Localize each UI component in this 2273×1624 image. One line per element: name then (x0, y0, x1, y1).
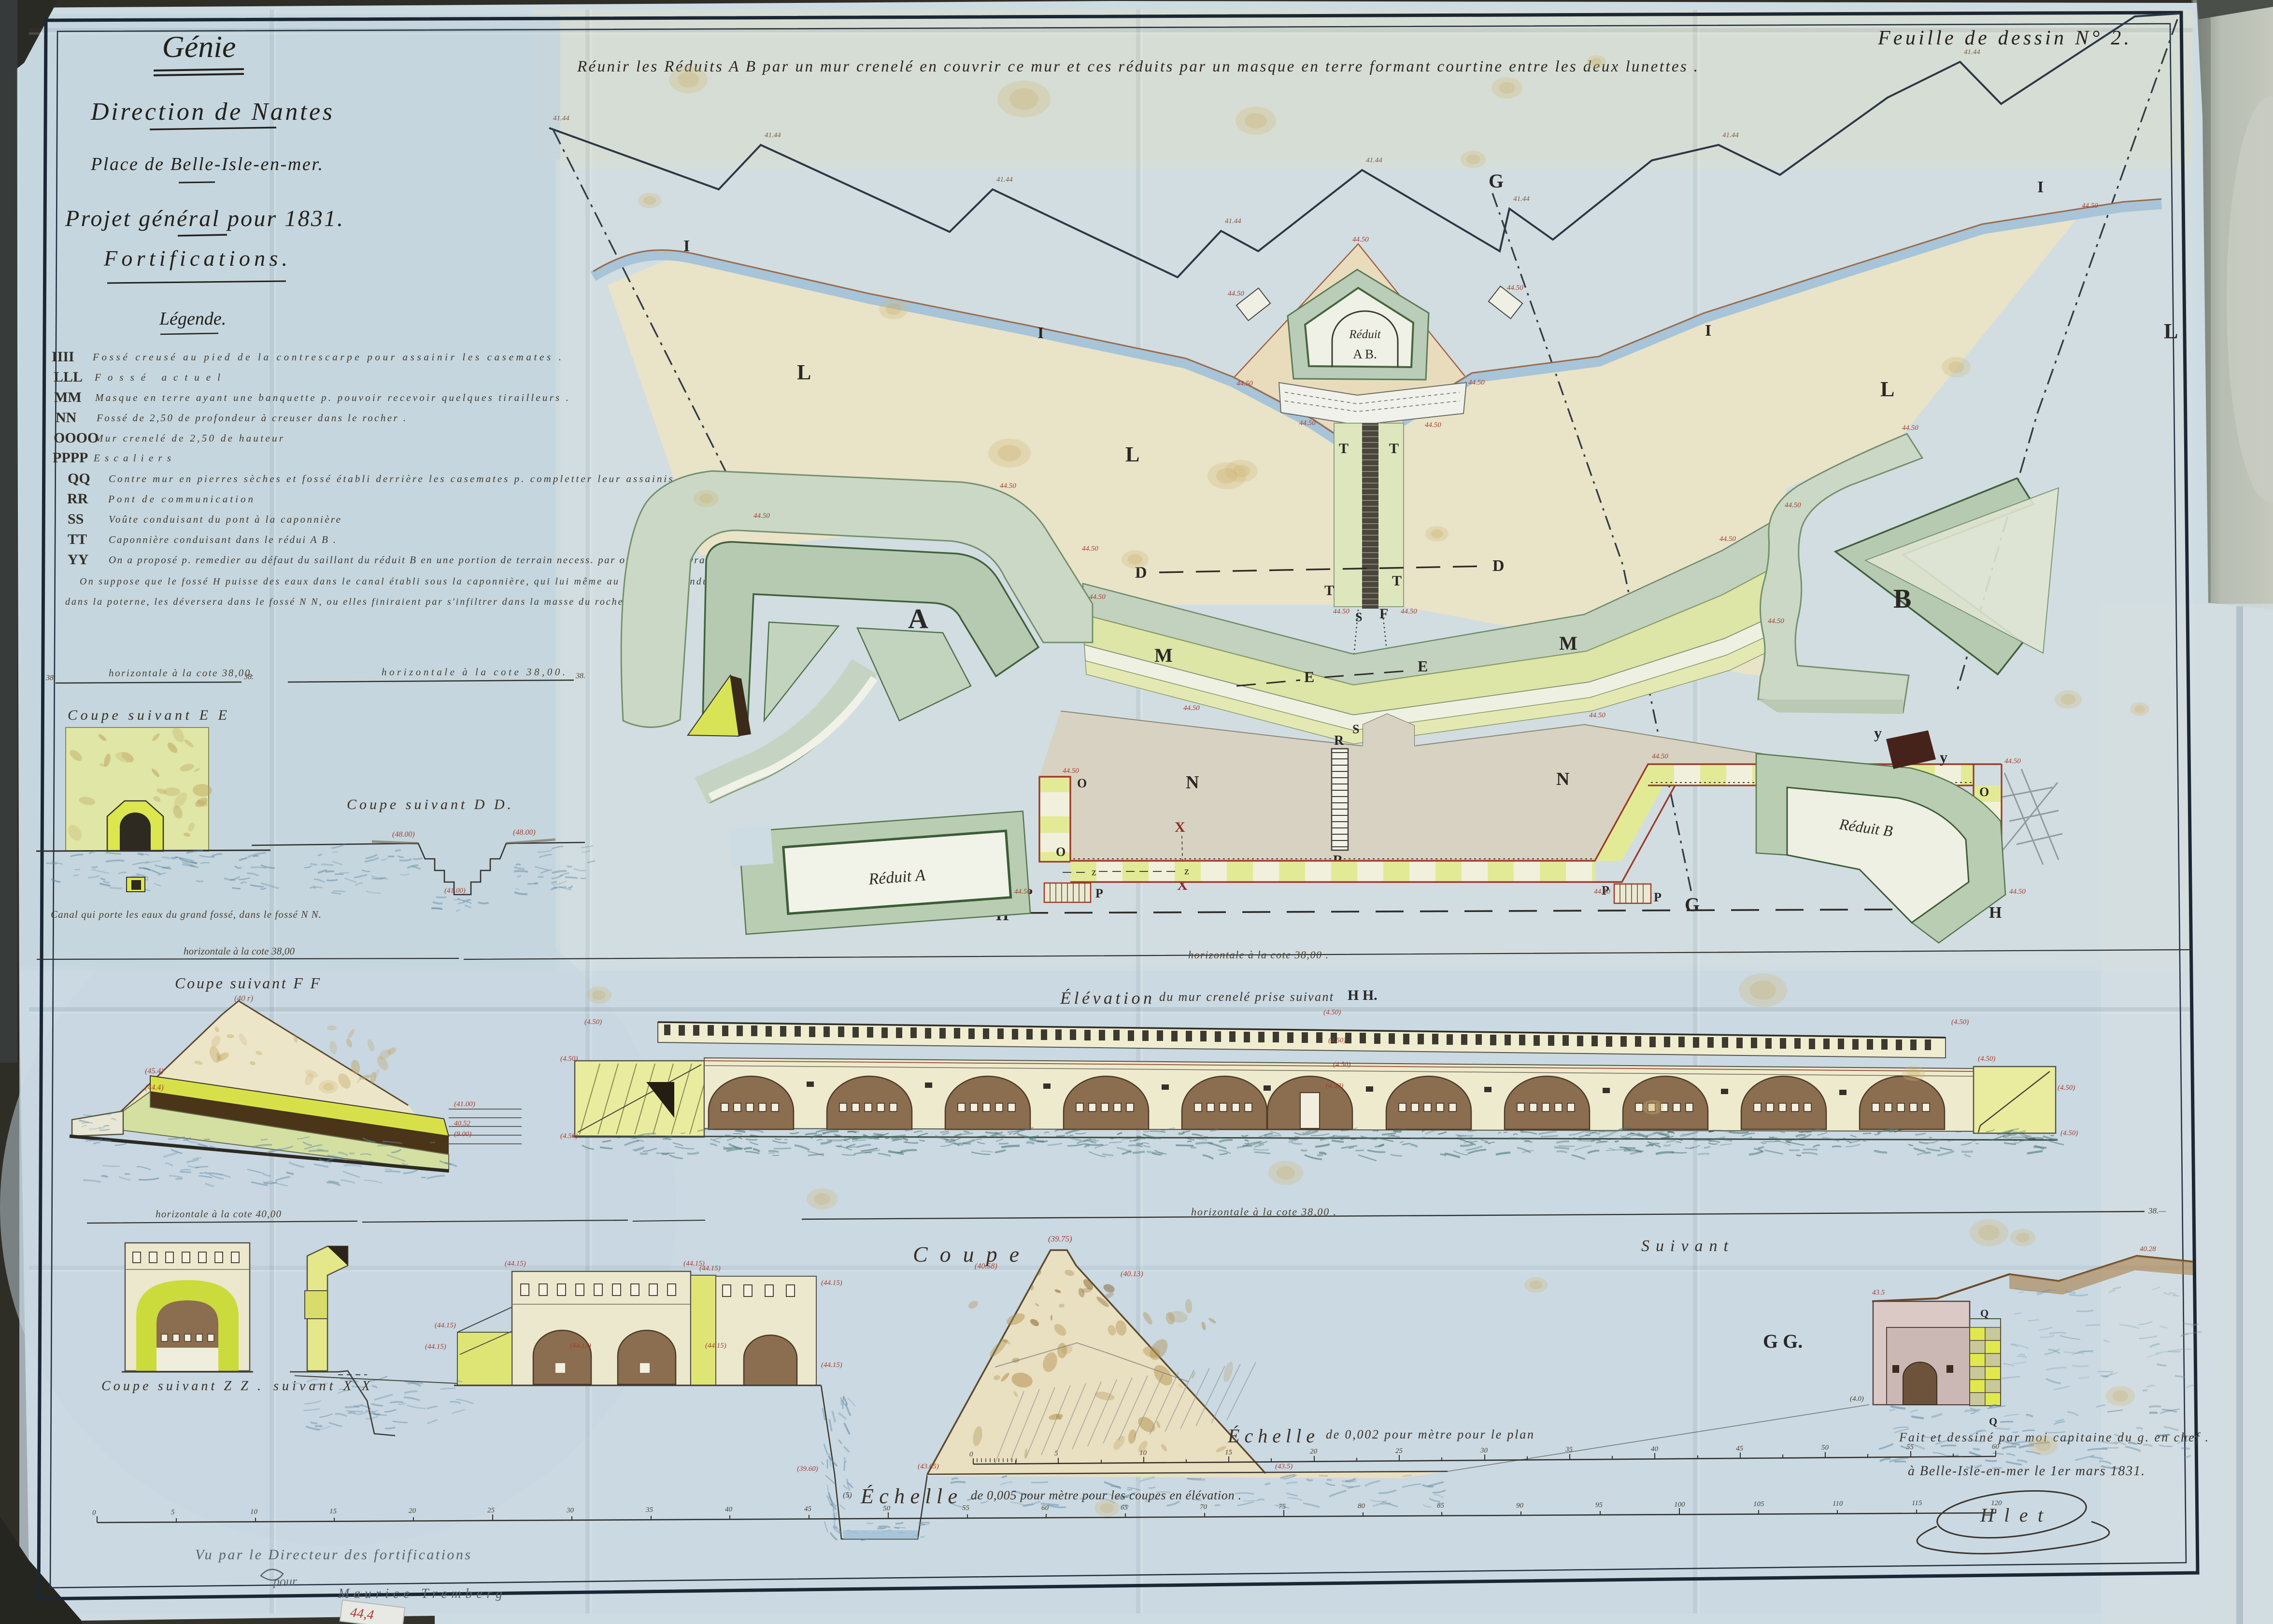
svg-text:I: I (1037, 324, 1044, 342)
svg-text:41.44: 41.44 (996, 176, 1013, 184)
svg-text:41.44: 41.44 (1513, 195, 1530, 203)
svg-text:(44.15): (44.15) (505, 1260, 526, 1268)
svg-text:44.50: 44.50 (1000, 482, 1016, 490)
svg-text:L: L (2164, 319, 2178, 343)
svg-text:44.50: 44.50 (753, 512, 770, 520)
svg-text:T: T (1324, 583, 1334, 598)
svg-text:(4.50): (4.50) (584, 1018, 602, 1026)
svg-text:44.50: 44.50 (1352, 236, 1369, 243)
svg-text:O: O (1979, 785, 1989, 799)
svg-text:(44.15): (44.15) (821, 1361, 842, 1369)
svg-text:44.50: 44.50 (1183, 704, 1200, 712)
svg-text:X: X (1175, 819, 1185, 835)
svg-text:55: 55 (962, 1504, 970, 1512)
svg-text:5: 5 (1054, 1450, 1058, 1457)
svg-text:Coupe suivant E E: Coupe suivant E E (68, 707, 227, 723)
svg-text:(4.50): (4.50) (560, 1132, 578, 1140)
svg-text:(39.60): (39.60) (797, 1465, 818, 1473)
svg-text:Canal qui porte les eaux du gr: Canal qui porte les eaux du grand fossé,… (51, 909, 321, 920)
svg-text:L: L (1125, 442, 1139, 466)
svg-text:44.50: 44.50 (1063, 767, 1079, 775)
svg-text:Place de Belle-Isle-en-mer.: Place de Belle-Isle-en-mer. (90, 154, 323, 174)
svg-text:M: M (1154, 644, 1173, 666)
svg-text:(4.50): (4.50) (1333, 1061, 1350, 1068)
svg-text:(41.00): (41.00) (444, 887, 466, 895)
svg-text:Q: Q (1980, 1307, 1989, 1319)
svg-text:dans la poterne, les déversera: dans la poterne, les déversera dans le f… (65, 597, 635, 607)
svg-text:44.50: 44.50 (1719, 535, 1736, 543)
svg-text:(4.50): (4.50) (2058, 1084, 2075, 1092)
svg-text:E: E (1418, 657, 1428, 675)
svg-text:110: 110 (1833, 1500, 1843, 1508)
svg-text:O: O (1056, 845, 1065, 859)
svg-text:38.: 38. (575, 672, 585, 680)
svg-text:B: B (1893, 584, 1911, 614)
svg-text:Vu par le Directeur des fortif: Vu par le Directeur des fortifications (195, 1547, 470, 1563)
svg-text:(44.15): (44.15) (699, 1265, 721, 1272)
svg-text:41.44: 41.44 (1964, 48, 1980, 56)
svg-text:à Belle-Isle-en-mer le 1er ma: à Belle-Isle-en-mer le 1er mars 1831. (1908, 1464, 2145, 1479)
svg-text:YY: YY (68, 552, 89, 568)
svg-text:40.28: 40.28 (2140, 1245, 2156, 1253)
svg-text:5: 5 (171, 1509, 175, 1516)
svg-text:(44.15): (44.15) (425, 1343, 446, 1351)
svg-text:(41.00): (41.00) (454, 1100, 475, 1108)
svg-text:44.50: 44.50 (2004, 757, 2021, 765)
svg-text:de 0,002 pour mètre pour le p: de 0,002 pour mètre pour le plan (1326, 1427, 1534, 1441)
svg-text:44.50: 44.50 (1425, 421, 1441, 429)
svg-text:80: 80 (1358, 1502, 1365, 1510)
svg-text:44.50: 44.50 (1333, 608, 1350, 615)
svg-text:35: 35 (1565, 1446, 1573, 1453)
svg-text:44.50: 44.50 (1468, 379, 1485, 386)
svg-text:I: I (683, 237, 690, 255)
svg-text:(4.50): (4.50) (560, 1055, 578, 1063)
svg-text:suivant X X: suivant X X (273, 1379, 370, 1394)
svg-text:G: G (1685, 894, 1700, 915)
svg-text:RR: RR (67, 491, 88, 507)
svg-text:y: y (1874, 724, 1882, 741)
svg-text:horizontale à la cote 38,00 .: horizontale à la cote 38,00 . (1191, 1206, 1336, 1218)
svg-text:S: S (1355, 610, 1362, 624)
svg-text:25: 25 (1395, 1447, 1403, 1455)
svg-text:(44.15): (44.15) (705, 1342, 726, 1350)
svg-text:20: 20 (409, 1507, 416, 1515)
svg-text:(45.4): (45.4) (145, 1067, 164, 1075)
svg-text:(4.50): (4.50) (1328, 1037, 1346, 1044)
svg-text:41.44: 41.44 (1722, 131, 1739, 139)
svg-text:44.50: 44.50 (1228, 290, 1244, 298)
svg-text:41.44: 41.44 (1225, 217, 1241, 225)
svg-text:T: T (1389, 441, 1399, 456)
svg-text:44.50: 44.50 (1768, 617, 1784, 625)
svg-text:G G.: G G. (1763, 1330, 1803, 1352)
svg-text:T: T (1339, 441, 1349, 456)
svg-text:H: H (1989, 904, 2002, 922)
svg-text:Projet général pour 1831.: Projet général pour 1831. (65, 206, 343, 231)
svg-text:30: 30 (566, 1507, 574, 1514)
svg-text:MM: MM (54, 389, 82, 405)
svg-text:A: A (908, 603, 928, 634)
svg-text:44.50: 44.50 (1902, 424, 1918, 432)
svg-text:(43.5): (43.5) (1275, 1463, 1293, 1470)
svg-text:horizontale à la cote 38,00 .: horizontale à la cote 38,00 . (1188, 949, 1328, 961)
svg-text:QQ: QQ (68, 470, 90, 486)
svg-text:44.50: 44.50 (1082, 545, 1098, 553)
svg-text:N: N (1186, 772, 1199, 793)
svg-text:TT: TT (68, 531, 87, 547)
svg-text:O: O (1077, 776, 1087, 790)
svg-text:pour: pour (272, 1574, 298, 1588)
svg-text:10: 10 (250, 1508, 258, 1516)
svg-text:(4.50): (4.50) (1326, 1082, 1343, 1090)
svg-text:(4.0): (4.0) (1850, 1395, 1864, 1403)
svg-text:Élévation: Élévation (1060, 988, 1152, 1008)
svg-text:Fortifications.: Fortifications. (103, 246, 287, 271)
svg-text:A B.: A B. (1353, 347, 1377, 361)
svg-text:(5): (5) (843, 1491, 852, 1499)
svg-text:z: z (1184, 865, 1189, 877)
svg-text:15: 15 (1225, 1449, 1233, 1456)
svg-text:M: M (1559, 632, 1577, 654)
svg-text:Réduit: Réduit (1349, 328, 1381, 341)
svg-text:44.50: 44.50 (2082, 202, 2098, 210)
svg-text:40: 40 (725, 1506, 733, 1513)
svg-text:45: 45 (1736, 1445, 1744, 1453)
svg-text:41.44: 41.44 (765, 131, 781, 139)
svg-text:40.52: 40.52 (454, 1120, 470, 1127)
svg-text:(44.4): (44.4) (145, 1083, 164, 1092)
svg-text:Coupe suivant F F: Coupe suivant F F (175, 974, 320, 992)
svg-text:(40.13): (40.13) (1121, 1270, 1143, 1278)
svg-text:44.50: 44.50 (1594, 888, 1610, 896)
svg-text:70: 70 (1200, 1503, 1208, 1511)
svg-text:45: 45 (804, 1505, 812, 1513)
svg-text:44.50: 44.50 (1014, 888, 1031, 896)
svg-text:Q: Q (1989, 1415, 1997, 1427)
svg-text:44.50: 44.50 (1589, 712, 1605, 719)
svg-text:(48.00): (48.00) (392, 830, 415, 839)
svg-text:L: L (797, 360, 811, 384)
svg-text:20: 20 (1310, 1448, 1318, 1455)
svg-text:(4.50): (4.50) (1978, 1055, 1995, 1063)
svg-text:(44.15): (44.15) (821, 1279, 842, 1287)
svg-text:SS: SS (68, 511, 84, 527)
svg-text:44.50: 44.50 (1401, 608, 1417, 615)
svg-text:LLL: LLL (54, 369, 83, 385)
svg-text:43.5: 43.5 (1872, 1289, 1885, 1296)
svg-text:E: E (1304, 668, 1314, 685)
svg-text:50: 50 (883, 1505, 891, 1512)
svg-text:(48.00): (48.00) (513, 828, 536, 837)
svg-text:115: 115 (1912, 1499, 1922, 1507)
svg-text:R: R (1334, 733, 1344, 748)
svg-text:44.50: 44.50 (1089, 593, 1106, 601)
svg-text:L: L (1880, 377, 1894, 401)
svg-text:100: 100 (1674, 1501, 1685, 1509)
svg-text:90: 90 (1516, 1502, 1524, 1510)
svg-text:Génie: Génie (162, 29, 236, 64)
svg-text:G: G (1489, 170, 1504, 192)
svg-text:N: N (1556, 769, 1569, 789)
svg-text:44.50: 44.50 (2009, 888, 2026, 896)
svg-text:44.50: 44.50 (1785, 501, 1801, 509)
svg-text:(9.00): (9.00) (454, 1130, 471, 1138)
svg-text:38: 38 (45, 674, 54, 682)
svg-text:41.44: 41.44 (553, 114, 569, 122)
svg-text:38.: 38. (243, 673, 254, 681)
svg-text:60: 60 (1041, 1504, 1049, 1512)
svg-text:95: 95 (1595, 1501, 1603, 1509)
svg-text:PPPP: PPPP (53, 450, 88, 466)
svg-text:30: 30 (1480, 1447, 1488, 1454)
svg-text:P: P (1654, 890, 1662, 904)
svg-text:z: z (1092, 866, 1096, 878)
svg-text:(40.58): (40.58) (975, 1262, 997, 1270)
svg-text:0: 0 (92, 1509, 96, 1517)
svg-text:OOOO: OOOO (54, 430, 99, 446)
svg-text:44.50: 44.50 (1507, 284, 1523, 292)
svg-text:40: 40 (1651, 1445, 1659, 1453)
svg-text:15: 15 (329, 1508, 337, 1515)
svg-text:75: 75 (1279, 1503, 1286, 1510)
svg-text:44.50: 44.50 (1299, 419, 1316, 427)
svg-text:H H.: H H. (1348, 987, 1378, 1003)
svg-text:S: S (1352, 722, 1359, 736)
svg-text:55: 55 (1906, 1443, 1914, 1451)
svg-text:NN: NN (56, 410, 77, 426)
svg-text:Légende.: Légende. (159, 309, 226, 329)
svg-text:10: 10 (1139, 1449, 1147, 1457)
svg-text:(44.15): (44.15) (435, 1322, 456, 1329)
svg-text:IIII: IIII (52, 349, 74, 365)
svg-text:(4.50): (4.50) (2060, 1129, 2078, 1137)
svg-text:25: 25 (487, 1507, 495, 1514)
svg-text:(4.50): (4.50) (1951, 1018, 1969, 1026)
svg-text:Direction de Nantes: Direction de Nantes (90, 98, 332, 126)
svg-text:38.—: 38.— (2148, 1206, 2166, 1215)
svg-text:(39.75): (39.75) (1048, 1234, 1072, 1243)
svg-text:y: y (1940, 748, 1947, 766)
svg-text:41.44: 41.44 (1366, 157, 1382, 164)
svg-text:44.50: 44.50 (1652, 753, 1668, 760)
svg-text:(44.15): (44.15) (570, 1342, 591, 1350)
svg-text:44.50: 44.50 (1236, 380, 1253, 387)
svg-text:Fossé de 2,50 de profondeur à: Fossé de 2,50 de profondeur à creuser da… (96, 412, 406, 424)
svg-text:65: 65 (1121, 1504, 1128, 1511)
svg-text:85: 85 (1437, 1502, 1445, 1510)
svg-text:(43.65): (43.65) (918, 1463, 939, 1470)
svg-text:44,4: 44,4 (349, 1605, 374, 1623)
svg-text:35: 35 (645, 1506, 653, 1514)
svg-text:horizontale à la cote 38,00: horizontale à la cote 38,00 (184, 945, 295, 957)
svg-text:50: 50 (1821, 1444, 1829, 1452)
svg-text:D: D (1492, 557, 1505, 575)
svg-text:I: I (2037, 178, 2044, 196)
svg-text:T: T (1392, 573, 1402, 589)
svg-text:(4.50): (4.50) (1323, 1009, 1341, 1016)
svg-text:0: 0 (969, 1451, 973, 1458)
svg-text:I: I (1705, 322, 1711, 340)
svg-text:105: 105 (1753, 1500, 1764, 1508)
svg-text:P: P (1095, 886, 1103, 900)
